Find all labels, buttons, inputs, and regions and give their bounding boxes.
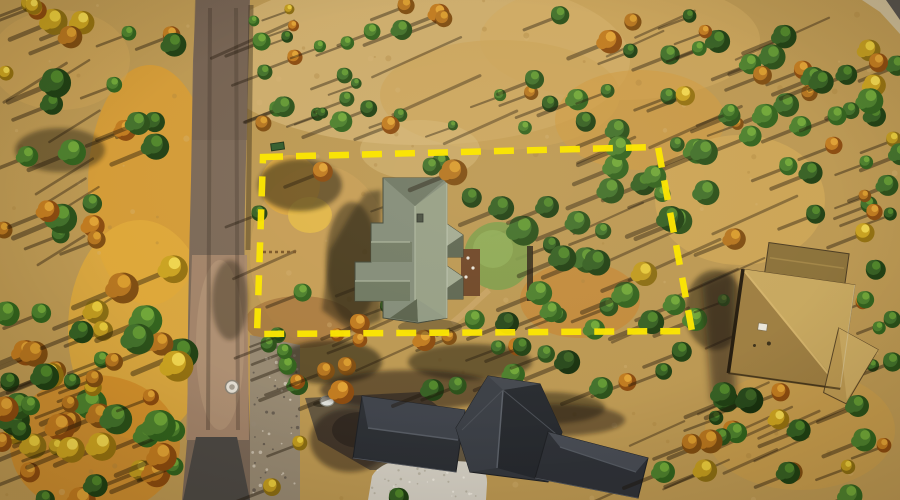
aerial-photo-canvas: [0, 0, 900, 500]
aerial-photo: Aerial drone photo of a forested residen…: [0, 0, 900, 500]
vignette: [0, 0, 900, 500]
